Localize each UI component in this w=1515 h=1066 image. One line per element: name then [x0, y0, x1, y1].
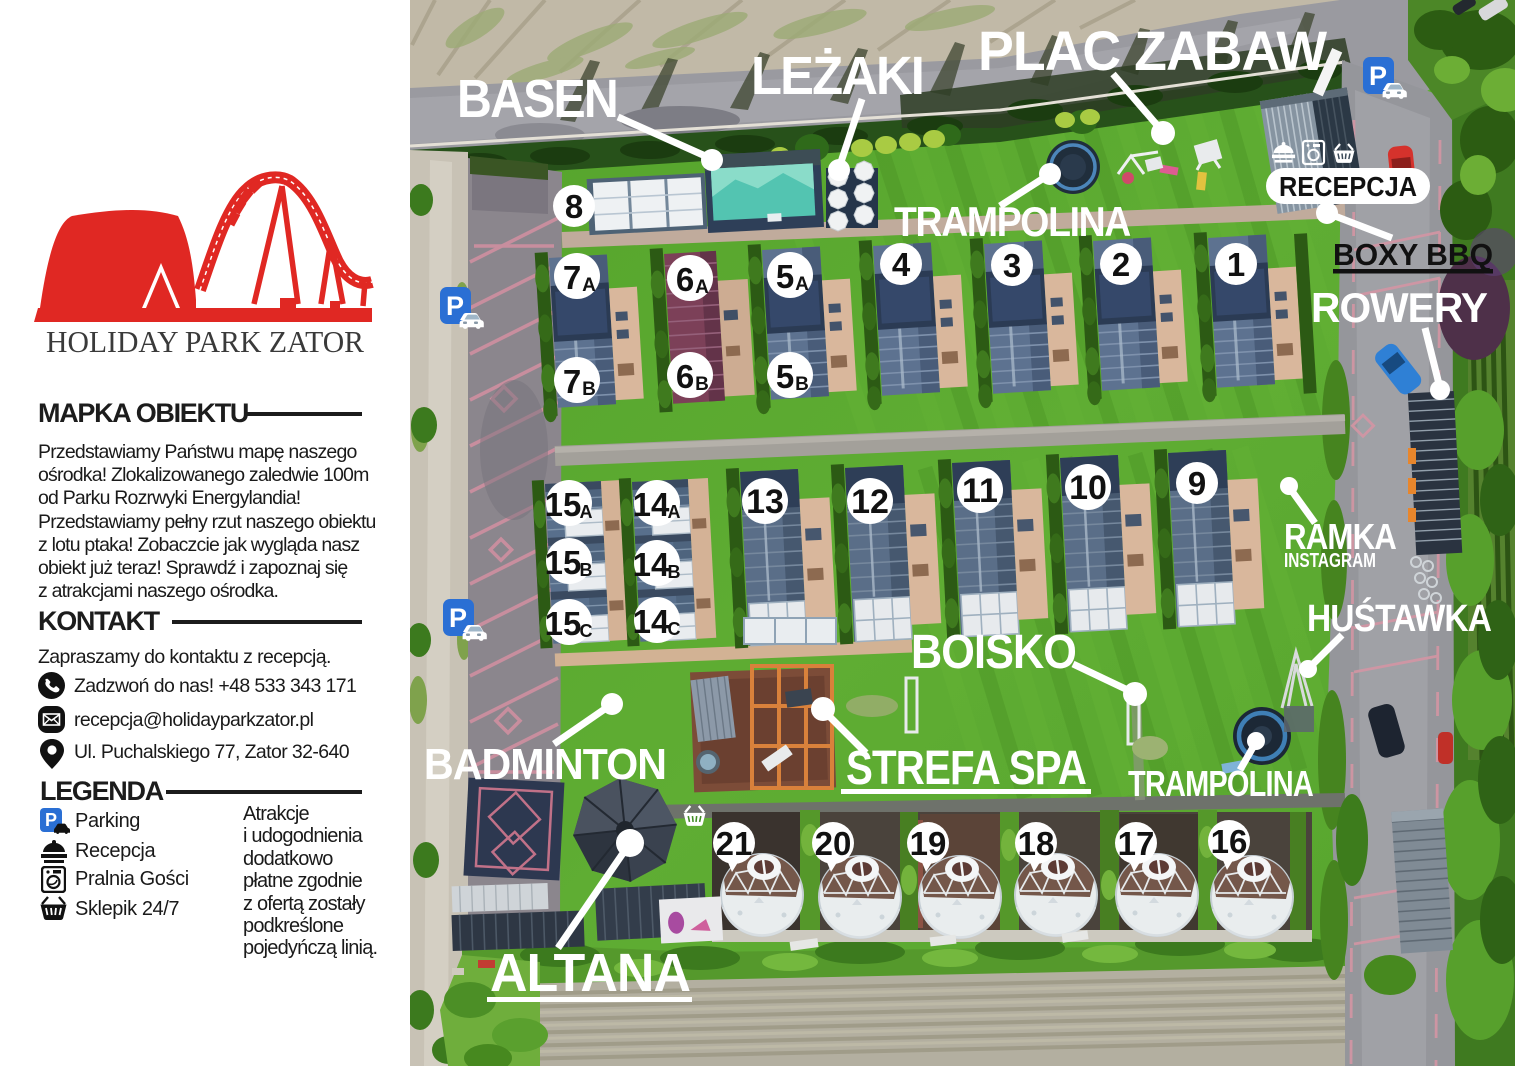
svg-text:HUŚTAWKA: HUŚTAWKA [1307, 596, 1491, 640]
svg-text:15: 15 [545, 486, 582, 523]
svg-text:11: 11 [962, 472, 998, 510]
svg-text:17: 17 [1118, 825, 1155, 862]
svg-text:3: 3 [1003, 247, 1021, 284]
svg-text:4: 4 [892, 246, 911, 283]
svg-text:BADMINTON: BADMINTON [424, 740, 666, 789]
svg-text:5: 5 [776, 358, 794, 395]
svg-text:15: 15 [545, 605, 582, 642]
svg-text:9: 9 [1188, 465, 1206, 502]
svg-text:A: A [582, 275, 596, 296]
svg-text:BOISKO: BOISKO [911, 626, 1076, 679]
svg-text:HOLIDAY PARK ZATOR: HOLIDAY PARK ZATOR [46, 324, 364, 359]
svg-text:16: 16 [1211, 823, 1248, 860]
svg-text:C: C [580, 621, 593, 641]
svg-text:B: B [695, 374, 709, 395]
svg-text:15: 15 [545, 544, 582, 581]
svg-text:5: 5 [776, 258, 794, 295]
svg-text:10: 10 [1069, 469, 1107, 507]
svg-text:PLAC ZABAW: PLAC ZABAW [978, 19, 1327, 82]
svg-text:INSTAGRAM: INSTAGRAM [1284, 550, 1376, 572]
svg-text:TRAMPOLINA: TRAMPOLINA [1128, 763, 1314, 804]
svg-text:14: 14 [633, 546, 670, 583]
svg-text:1: 1 [1227, 246, 1245, 283]
svg-text:13: 13 [746, 483, 784, 521]
svg-text:ALTANA: ALTANA [490, 943, 690, 1003]
svg-text:B: B [582, 379, 596, 400]
svg-text:B: B [795, 374, 809, 395]
svg-text:7: 7 [563, 259, 581, 296]
svg-text:12: 12 [851, 483, 889, 521]
svg-text:C: C [668, 619, 681, 639]
svg-text:TRAMPOLINA: TRAMPOLINA [894, 198, 1131, 245]
svg-text:A: A [580, 502, 593, 522]
svg-text:ROWERY: ROWERY [1311, 284, 1488, 331]
svg-text:6: 6 [676, 261, 694, 298]
svg-text:7: 7 [563, 363, 581, 400]
svg-text:20: 20 [815, 825, 852, 862]
svg-text:BASEN: BASEN [457, 69, 617, 129]
svg-text:STREFA SPA: STREFA SPA [846, 742, 1086, 795]
svg-text:A: A [795, 274, 809, 295]
svg-text:A: A [695, 277, 709, 298]
svg-text:19: 19 [910, 825, 947, 862]
svg-text:8: 8 [565, 188, 583, 225]
svg-text:BOXY BBQ: BOXY BBQ [1333, 237, 1493, 272]
svg-text:21: 21 [716, 825, 753, 862]
svg-text:A: A [668, 502, 681, 522]
svg-text:14: 14 [633, 603, 670, 640]
svg-text:P: P [45, 810, 57, 830]
svg-text:6: 6 [676, 358, 694, 395]
svg-text:LEŻAKI: LEŻAKI [751, 46, 923, 106]
svg-text:B: B [668, 562, 681, 582]
svg-text:2: 2 [1112, 246, 1130, 283]
svg-text:14: 14 [633, 486, 670, 523]
svg-text:B: B [580, 560, 593, 580]
svg-text:RECEPCJA: RECEPCJA [1279, 171, 1417, 202]
svg-text:18: 18 [1018, 825, 1055, 862]
